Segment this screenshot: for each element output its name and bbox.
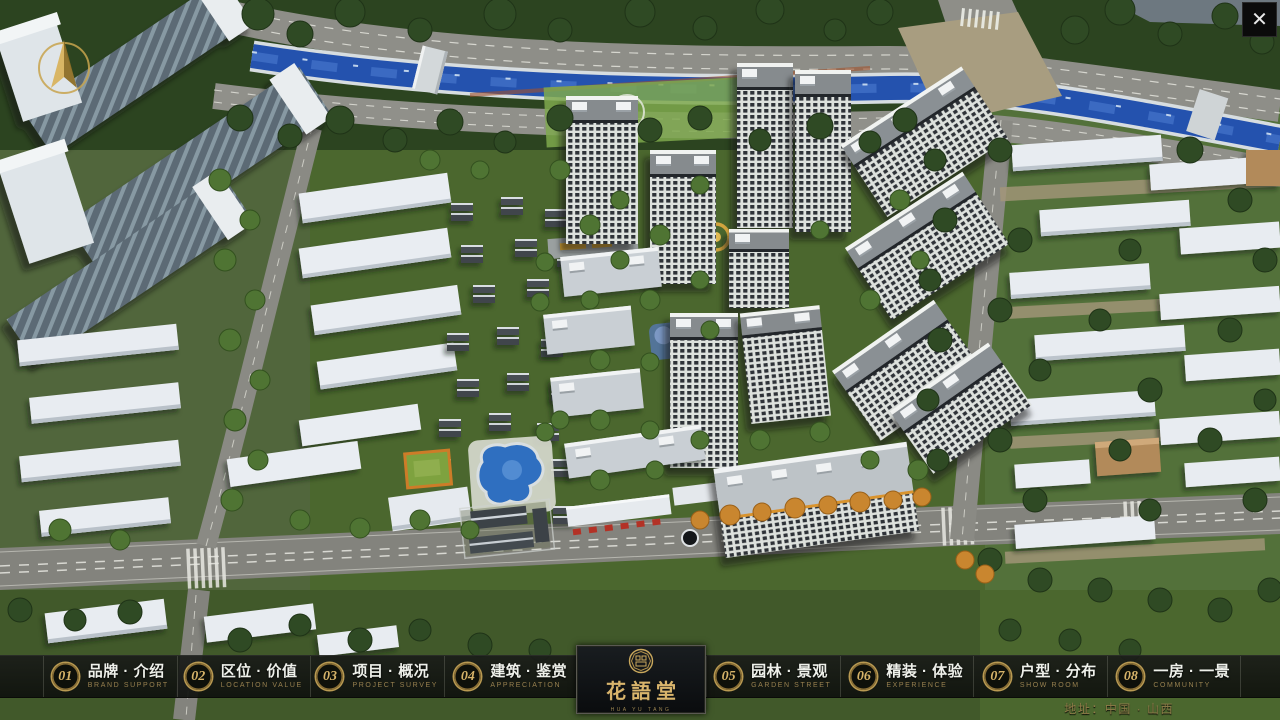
nav-label-en: SHOW ROOM [1020,682,1080,689]
nav-number-badge: 06 [850,663,877,690]
project-tagline: HUA YU TANG [611,707,672,713]
presentation-stage: ✕ 01 品牌 · 介绍 BRAND SUPPORT 02 区位 · 价值 LO… [0,0,1280,720]
kindergarten [405,450,452,488]
close-icon: ✕ [1251,7,1268,31]
nav-label-zh: 一房 · 一景 [1153,664,1230,679]
navbar-spacer [0,656,43,697]
nav-label-zh: 精装 · 体验 [886,664,963,679]
nav-label-zh: 区位 · 价值 [221,664,298,679]
nav-item-views[interactable]: 08 一房 · 一景 COMMUNITY [1107,656,1241,697]
nav-label-en: COMMUNITY [1153,682,1211,689]
project-logo-panel[interactable]: 花語堂 HUA YU TANG [576,645,706,714]
close-button[interactable]: ✕ [1242,2,1277,37]
nav-number-badge: 07 [984,663,1011,690]
nav-item-architecture[interactable]: 04 建筑 · 鉴赏 APPRECIATION [444,656,578,697]
nav-label-zh: 户型 · 分布 [1020,664,1097,679]
nav-label-en: EXPERIENCE [886,682,947,689]
seal-icon [628,648,654,674]
compass-north-indicator [28,30,100,102]
nav-item-project[interactable]: 03 项目 · 概况 PROJECT SURVEY [310,656,444,697]
nav-label-zh: 园林 · 景观 [751,664,828,679]
nav-label-zh: 品牌 · 介绍 [88,664,165,679]
entrance-gate [682,530,698,546]
nav-number-badge: 03 [316,663,343,690]
nav-number-badge: 08 [1117,663,1144,690]
compass-arrow-light [51,40,64,88]
nav-item-interior[interactable]: 06 精装 · 体验 EXPERIENCE [840,656,974,697]
nav-item-floorplan[interactable]: 07 户型 · 分布 SHOW ROOM [973,656,1107,697]
nav-label-zh: 建筑 · 鉴赏 [490,664,567,679]
nav-item-location[interactable]: 02 区位 · 价值 LOCATION VALUE [177,656,311,697]
nav-number-badge: 04 [454,663,481,690]
nav-number-badge: 01 [52,663,79,690]
project-name: 花語堂 [601,675,681,704]
nav-label-zh: 项目 · 概况 [352,664,429,679]
nav-label-en: PROJECT SURVEY [352,682,438,689]
nav-label-en: LOCATION VALUE [221,682,303,689]
nav-label-en: BRAND SUPPORT [88,682,169,689]
nav-item-garden[interactable]: 05 园林 · 景观 GARDEN STREET [706,656,840,697]
nav-number-badge: 05 [715,663,742,690]
compass-arrow-dark [64,40,77,88]
nav-label-en: GARDEN STREET [751,682,831,689]
navbar-spacer [1240,656,1280,697]
nav-label-en: APPRECIATION [490,682,561,689]
nav-number-badge: 02 [185,663,212,690]
project-address: 地址：中国 · 山西 [1064,700,1174,717]
aerial-map-render[interactable] [0,0,1280,720]
nav-item-brand[interactable]: 01 品牌 · 介绍 BRAND SUPPORT [43,656,177,697]
